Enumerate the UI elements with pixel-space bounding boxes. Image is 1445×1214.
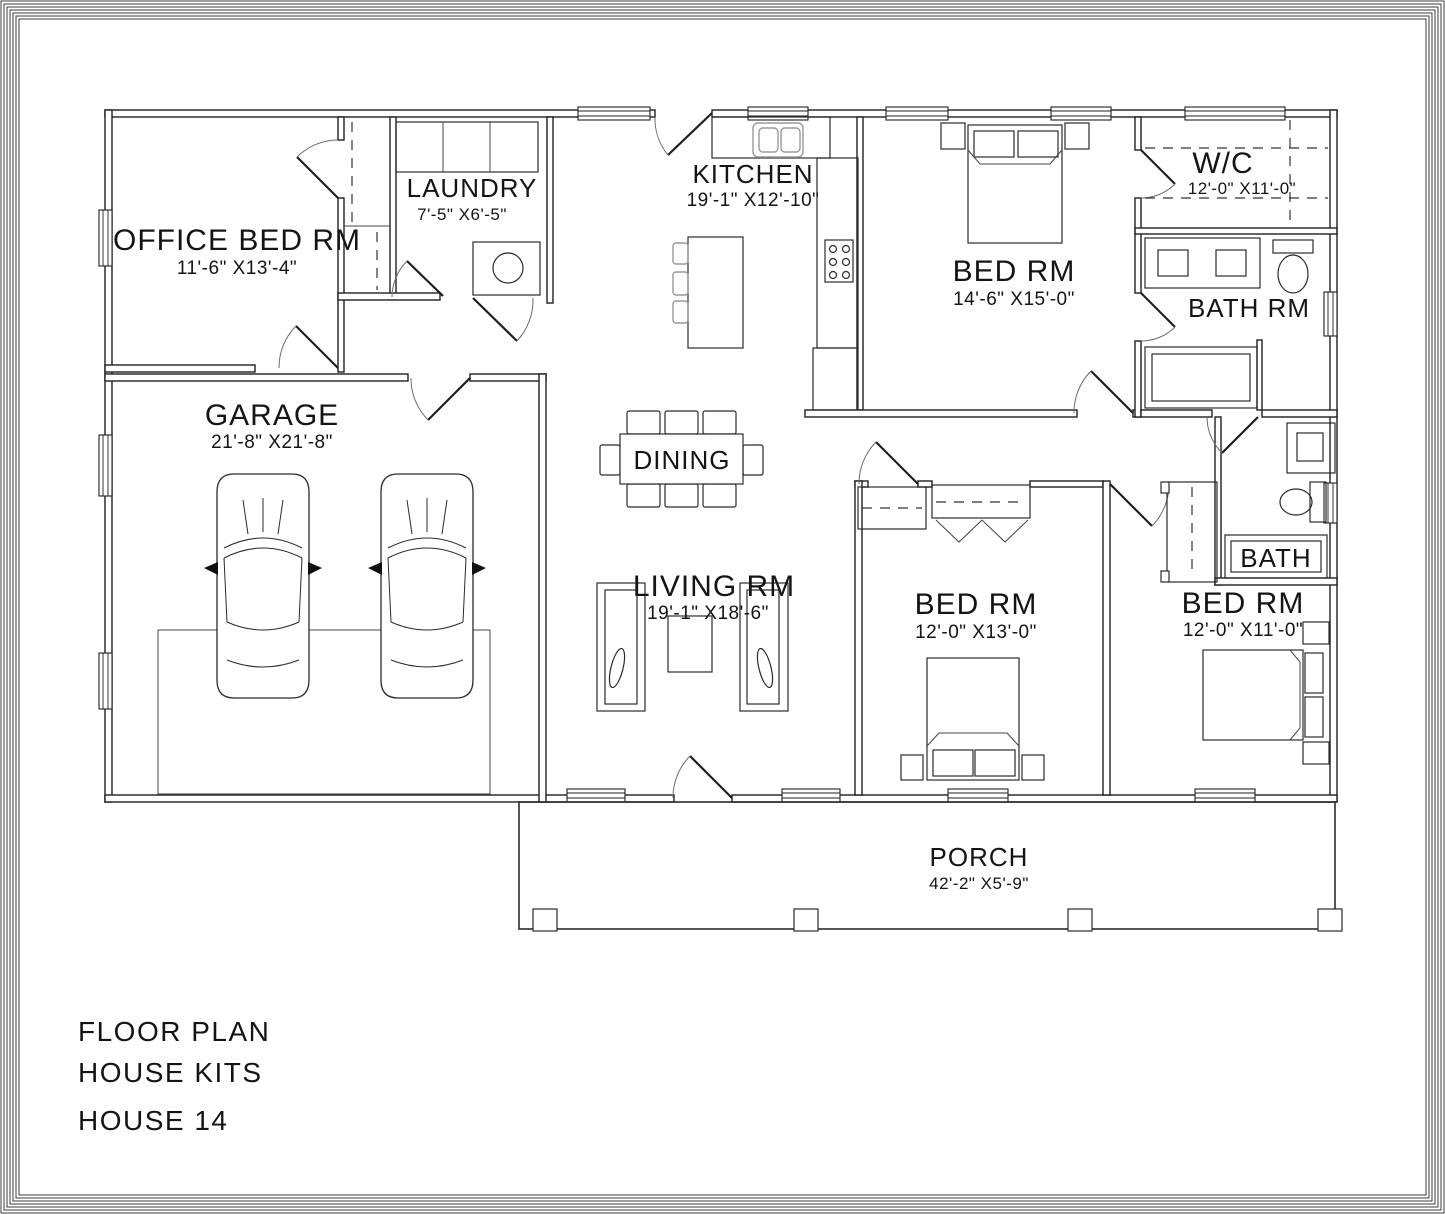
stool-icon <box>673 301 688 323</box>
bathtub-icon <box>1145 347 1257 408</box>
title-line-1: FLOOR PLAN <box>78 1016 270 1047</box>
label-porch-dims: 42'-2" X5'-9" <box>929 874 1029 893</box>
kitchen-counter-right <box>817 158 858 348</box>
floor-plan-canvas: OFFICE BED RM 11'-6" X13'-4" LAUNDRY 7'-… <box>0 0 1445 1214</box>
toilet-icon <box>1273 240 1313 293</box>
stool-icon <box>673 243 688 264</box>
door-bed1 <box>1074 371 1133 413</box>
porch-post <box>533 909 557 931</box>
label-garage: GARAGE <box>205 399 339 432</box>
title-line-3: HOUSE 14 <box>78 1105 229 1136</box>
door-side-entry <box>655 113 712 155</box>
bed2-left-closet <box>858 487 926 529</box>
bed-icon <box>968 125 1062 243</box>
label-bed2-dims: 12'-0" X13'-0" <box>915 622 1037 643</box>
window-top-5 <box>1185 107 1285 120</box>
label-living-dims: 19'-1" X18'-6" <box>647 603 769 624</box>
label-dining: DINING <box>634 445 731 475</box>
bathroom-fixtures <box>1145 238 1335 578</box>
nightstand-icon <box>1022 755 1044 780</box>
chair-icon <box>600 445 620 475</box>
label-kitchen-dims: 19'-1" X12'-10" <box>687 190 820 211</box>
label-kitchen: KITCHEN <box>692 159 813 189</box>
label-laundry-dims: 7'-5" X6'-5" <box>417 205 507 224</box>
coffee-table <box>668 616 712 672</box>
bed3-closet <box>1161 482 1217 582</box>
label-bath: BATH <box>1240 543 1311 573</box>
utility-sink-icon <box>473 242 540 295</box>
pillow-icon <box>975 750 1015 776</box>
title-block: FLOOR PLAN HOUSE KITS HOUSE 14 <box>78 1016 270 1136</box>
chair-icon <box>627 484 660 507</box>
kitchen-sink-icon <box>753 123 803 157</box>
window-top-3 <box>886 107 948 120</box>
nightstand-icon <box>901 755 923 780</box>
label-porch: PORCH <box>930 842 1029 872</box>
nightstand-icon <box>1065 123 1089 149</box>
bed2-furniture <box>901 658 1044 780</box>
nightstand-icon <box>1303 622 1329 644</box>
pillow-icon <box>1305 697 1323 737</box>
label-laundry: LAUNDRY <box>407 173 538 203</box>
door-office-entry <box>279 326 338 368</box>
porch-post <box>1068 909 1092 931</box>
washer-dryer-icon <box>396 122 538 172</box>
nightstand-icon <box>941 123 965 149</box>
toilet-icon-2 <box>1280 482 1326 522</box>
window-bottom-2 <box>782 789 840 802</box>
chair-icon <box>703 411 736 434</box>
pillow-icon <box>974 131 1014 157</box>
cooktop-icon <box>825 240 853 282</box>
window-bottom-1 <box>567 789 625 802</box>
window-top-2 <box>748 107 808 120</box>
label-office-dims: 11'-6" X13'-4" <box>177 258 297 279</box>
label-bed2: BED RM <box>915 588 1038 621</box>
window-right-1 <box>1324 292 1337 336</box>
bed2-closet <box>932 485 1030 542</box>
label-living: LIVING RM <box>633 570 795 603</box>
pillow-icon <box>933 750 973 776</box>
door-bed3 <box>1110 484 1169 526</box>
car-icon <box>204 474 322 698</box>
pillow-icon <box>1018 131 1058 157</box>
chair-icon <box>627 411 660 434</box>
chair-icon <box>743 445 763 475</box>
window-top-4 <box>1051 107 1111 120</box>
door-bed2 <box>859 442 918 484</box>
title-line-2: HOUSE KITS <box>78 1057 263 1088</box>
window-left-1 <box>99 210 112 266</box>
small-bath-vanity <box>1287 423 1335 473</box>
window-left-2 <box>99 435 112 496</box>
bed3-furniture <box>1203 622 1329 764</box>
bed1-furniture <box>941 123 1089 243</box>
door-garage <box>411 378 470 420</box>
label-bed1: BED RM <box>953 255 1076 288</box>
floor-plan-drawing: OFFICE BED RM 11'-6" X13'-4" LAUNDRY 7'-… <box>0 0 1445 1214</box>
door-laundry <box>392 261 443 297</box>
label-bathrm: BATH RM <box>1188 293 1310 323</box>
stool-icon <box>673 272 688 295</box>
nightstand-icon <box>1303 742 1329 764</box>
label-bed3-dims: 12'-0" X11'-0" <box>1183 620 1303 641</box>
porch-post <box>794 909 818 931</box>
door-office-closet <box>297 140 338 198</box>
label-bed1-dims: 14'-6" X15'-0" <box>953 289 1075 310</box>
chair-icon <box>703 484 736 507</box>
door-utility-closet <box>473 298 533 341</box>
bed-icon <box>1203 650 1303 740</box>
label-bed3: BED RM <box>1182 587 1305 620</box>
window-bottom-4 <box>1195 789 1255 802</box>
door-front <box>673 756 732 798</box>
window-bottom-3 <box>948 789 1008 802</box>
garage-contents <box>158 474 490 794</box>
chair-icon <box>665 484 698 507</box>
label-wc-dims: 12'-0" X11'-0" <box>1188 179 1296 198</box>
window-left-3 <box>99 653 112 709</box>
window-top-1 <box>578 107 650 120</box>
kitchen-island <box>673 237 743 348</box>
car-icon <box>368 474 486 698</box>
label-office: OFFICE BED RM <box>113 224 361 257</box>
label-garage-dims: 21'-8" X21'-8" <box>211 432 333 453</box>
door-bathrm <box>1141 293 1175 341</box>
pillow-icon <box>1305 653 1323 693</box>
bathrm-vanity <box>1145 238 1260 288</box>
porch-post <box>1318 909 1342 931</box>
door-wc <box>1141 150 1175 198</box>
chair-icon <box>665 411 698 434</box>
label-wc: W/C <box>1192 147 1253 180</box>
kitchen-cabinet <box>813 348 858 410</box>
